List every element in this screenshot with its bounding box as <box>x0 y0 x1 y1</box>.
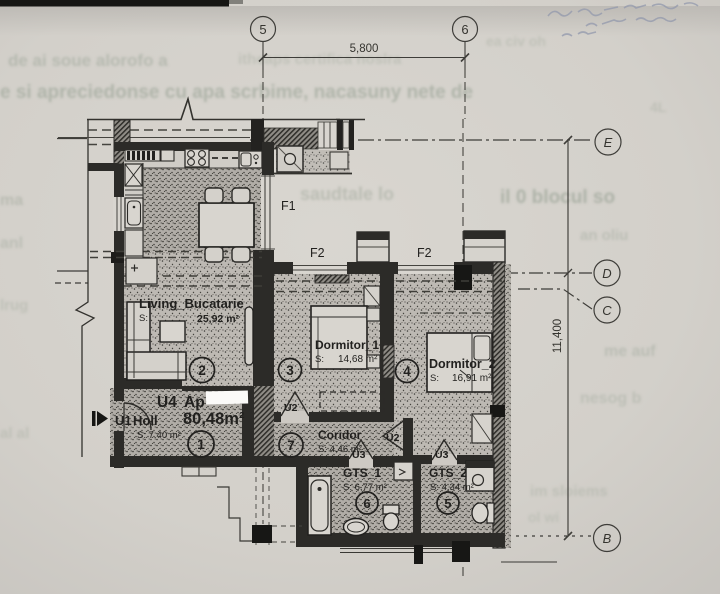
svg-text:S:: S: <box>315 354 324 365</box>
svg-text:C: C <box>602 303 612 318</box>
svg-text:lrug: lrug <box>0 297 28 314</box>
svg-text:an oliu: an oliu <box>580 227 628 244</box>
svg-text:Coridor: Coridor <box>318 428 362 442</box>
svg-text:F2: F2 <box>310 246 325 260</box>
svg-text:U4: U4 <box>157 394 177 411</box>
svg-text:S:: S: <box>430 373 439 384</box>
svg-text:U3: U3 <box>435 449 449 461</box>
svg-text:al al: al al <box>0 425 29 442</box>
svg-text:Holl: Holl <box>133 413 158 428</box>
svg-text:6: 6 <box>363 496 370 511</box>
svg-text:E: E <box>604 135 613 150</box>
svg-text:14,68 m²: 14,68 m² <box>338 354 378 365</box>
svg-text:U2: U2 <box>386 432 400 444</box>
svg-text:25,92 m²: 25,92 m² <box>197 313 240 325</box>
svg-text:3: 3 <box>286 363 294 378</box>
svg-text:ol wi: ol wi <box>528 509 559 525</box>
svg-text:S:: S: <box>139 313 148 324</box>
svg-text:B: B <box>603 531 612 546</box>
svg-text:U1: U1 <box>115 413 132 428</box>
svg-text:ma: ma <box>0 192 23 209</box>
svg-text:11,400: 11,400 <box>552 319 564 353</box>
svg-text:de ai soue alorofo a: de ai soue alorofo a <box>8 51 168 70</box>
svg-text:Ap: Ap <box>184 394 205 411</box>
svg-text:6: 6 <box>461 22 468 37</box>
svg-text:5: 5 <box>259 22 266 37</box>
svg-text:1: 1 <box>197 436 205 452</box>
svg-text:D: D <box>602 266 611 281</box>
svg-text:5: 5 <box>444 496 451 511</box>
svg-text:U3: U3 <box>352 449 366 461</box>
svg-text:7: 7 <box>287 438 295 453</box>
svg-text:F2: F2 <box>417 246 432 260</box>
svg-text:il 0 blocul so: il 0 blocul so <box>500 187 615 208</box>
svg-text:80,48m²: 80,48m² <box>183 410 245 428</box>
svg-text:saudtale lo: saudtale lo <box>300 184 394 204</box>
svg-text:ea civ oh: ea civ oh <box>486 33 546 49</box>
svg-text:2: 2 <box>198 362 206 378</box>
svg-text:GTS_2: GTS_2 <box>429 466 467 480</box>
svg-text:GTS_1: GTS_1 <box>343 466 381 480</box>
svg-text:S: 4,34 m²: S: 4,34 m² <box>430 482 474 493</box>
svg-text:4L: 4L <box>650 99 667 115</box>
svg-text:S: 6,77 m²: S: 6,77 m² <box>343 482 387 493</box>
svg-text:S: 7.40 m²: S: 7.40 m² <box>137 430 181 441</box>
svg-text:4: 4 <box>403 364 411 379</box>
svg-text:me auf: me auf <box>604 343 656 360</box>
svg-text:U2: U2 <box>284 402 298 414</box>
svg-text:Dormitor_1: Dormitor_1 <box>315 338 379 352</box>
svg-text:anl: anl <box>0 235 23 252</box>
svg-text:e si apreciedonse cu apa scrb: e si apreciedonse cu apa scrbime, nacasu… <box>0 82 473 103</box>
svg-text:5,800: 5,800 <box>350 43 379 55</box>
svg-text:F1: F1 <box>281 199 296 213</box>
svg-text:nesog b: nesog b <box>580 390 642 407</box>
svg-text:16,91 m²: 16,91 m² <box>452 373 492 384</box>
svg-text:Dormitor_2: Dormitor_2 <box>429 357 496 371</box>
svg-text:im sloiems: im sloiems <box>530 483 608 500</box>
svg-text:Living_Bucatarie: Living_Bucatarie <box>139 296 244 311</box>
